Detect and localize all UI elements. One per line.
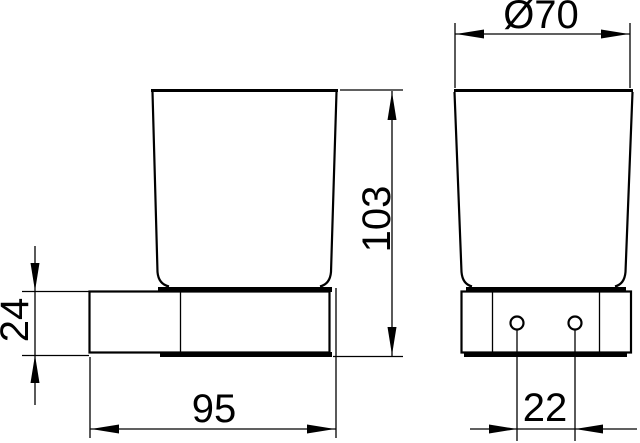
dimension-diameter: Ø70 bbox=[455, 0, 630, 88]
dimension-height: 103 bbox=[333, 90, 403, 357]
arrowhead-left-icon bbox=[575, 425, 603, 434]
arrowhead-down-icon bbox=[31, 263, 40, 291]
holder-body-front bbox=[462, 292, 632, 353]
arrowhead-right-icon bbox=[307, 425, 335, 434]
dimension-label-height: 103 bbox=[355, 186, 399, 253]
arrowhead-right-icon bbox=[601, 30, 629, 39]
arrowhead-left-icon bbox=[91, 425, 119, 434]
technical-drawing: 24 95 103 bbox=[0, 0, 640, 443]
holder-front bbox=[462, 292, 632, 355]
tumbler-front-wall bbox=[320, 92, 337, 287]
dimension-holder-height: 24 bbox=[0, 246, 89, 405]
tumbler-back-wall bbox=[153, 92, 170, 287]
dimension-label-diameter: Ø70 bbox=[503, 0, 579, 37]
holder-body-side bbox=[90, 292, 330, 353]
screw-hole-right bbox=[569, 317, 582, 330]
holder-side bbox=[90, 292, 333, 355]
tumbler-front bbox=[454, 91, 633, 290]
front-view: Ø70 22 bbox=[454, 0, 637, 441]
dimension-label-depth: 95 bbox=[192, 387, 237, 431]
side-view: 24 95 103 bbox=[0, 90, 403, 438]
tumbler-right-wall bbox=[615, 92, 633, 287]
arrowhead-up-icon bbox=[388, 92, 397, 120]
dimension-label-holder-height: 24 bbox=[0, 298, 37, 343]
arrowhead-down-icon bbox=[388, 327, 397, 355]
drawing-canvas: 24 95 103 bbox=[0, 0, 640, 443]
arrowhead-right-icon bbox=[489, 425, 517, 434]
dimension-label-hole-spacing: 22 bbox=[523, 386, 568, 430]
tumbler-side bbox=[151, 91, 338, 290]
arrowhead-up-icon bbox=[31, 355, 40, 383]
arrowhead-left-icon bbox=[456, 30, 484, 39]
tumbler-left-wall bbox=[455, 92, 473, 287]
screw-hole-left bbox=[511, 317, 524, 330]
